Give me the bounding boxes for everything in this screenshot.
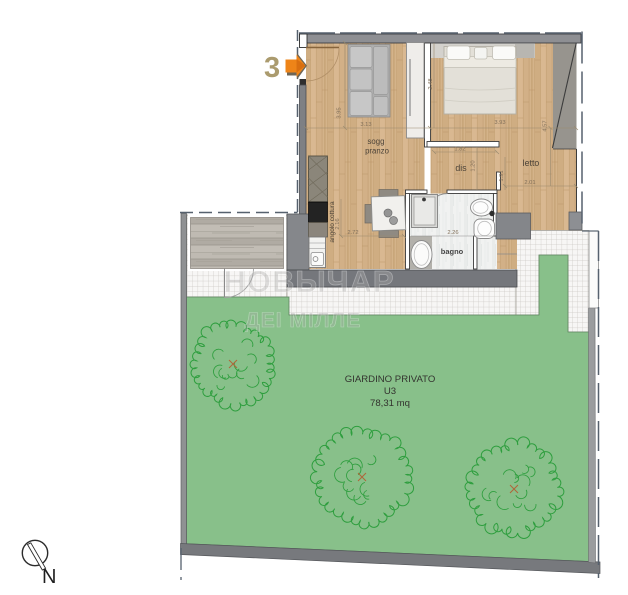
svg-text:letto: letto: [523, 158, 540, 168]
svg-text:1.91: 1.91: [499, 170, 505, 181]
svg-text:sogg: sogg: [368, 137, 385, 146]
svg-text:1.20: 1.20: [471, 160, 477, 171]
svg-text:НОВЫЧАР: НОВЫЧАР: [223, 264, 394, 299]
svg-text:3.93: 3.93: [494, 120, 505, 126]
svg-text:2.48: 2.48: [428, 78, 434, 89]
svg-text:2.01: 2.01: [524, 180, 535, 186]
svg-text:ДЕІ МІЛЛЕ: ДЕІ МІЛЛЕ: [245, 309, 361, 332]
svg-text:pranzo: pranzo: [365, 147, 390, 156]
svg-text:angolo cottura: angolo cottura: [329, 201, 336, 243]
svg-text:2.72: 2.72: [347, 230, 358, 236]
svg-text:3.95: 3.95: [337, 107, 343, 118]
svg-text:3.13: 3.13: [360, 122, 371, 128]
svg-text:bagno: bagno: [441, 247, 464, 256]
svg-text:U3: U3: [384, 386, 396, 397]
svg-text:1.82: 1.82: [454, 147, 465, 153]
svg-text:2.26: 2.26: [447, 230, 458, 236]
svg-text:N: N: [42, 566, 56, 588]
svg-text:GIARDINO PRIVATO: GIARDINO PRIVATO: [345, 374, 436, 385]
svg-text:78,31 mq: 78,31 mq: [370, 398, 410, 409]
svg-text:3: 3: [264, 52, 280, 84]
svg-text:4.57: 4.57: [543, 120, 549, 131]
svg-text:dis: dis: [455, 163, 467, 173]
